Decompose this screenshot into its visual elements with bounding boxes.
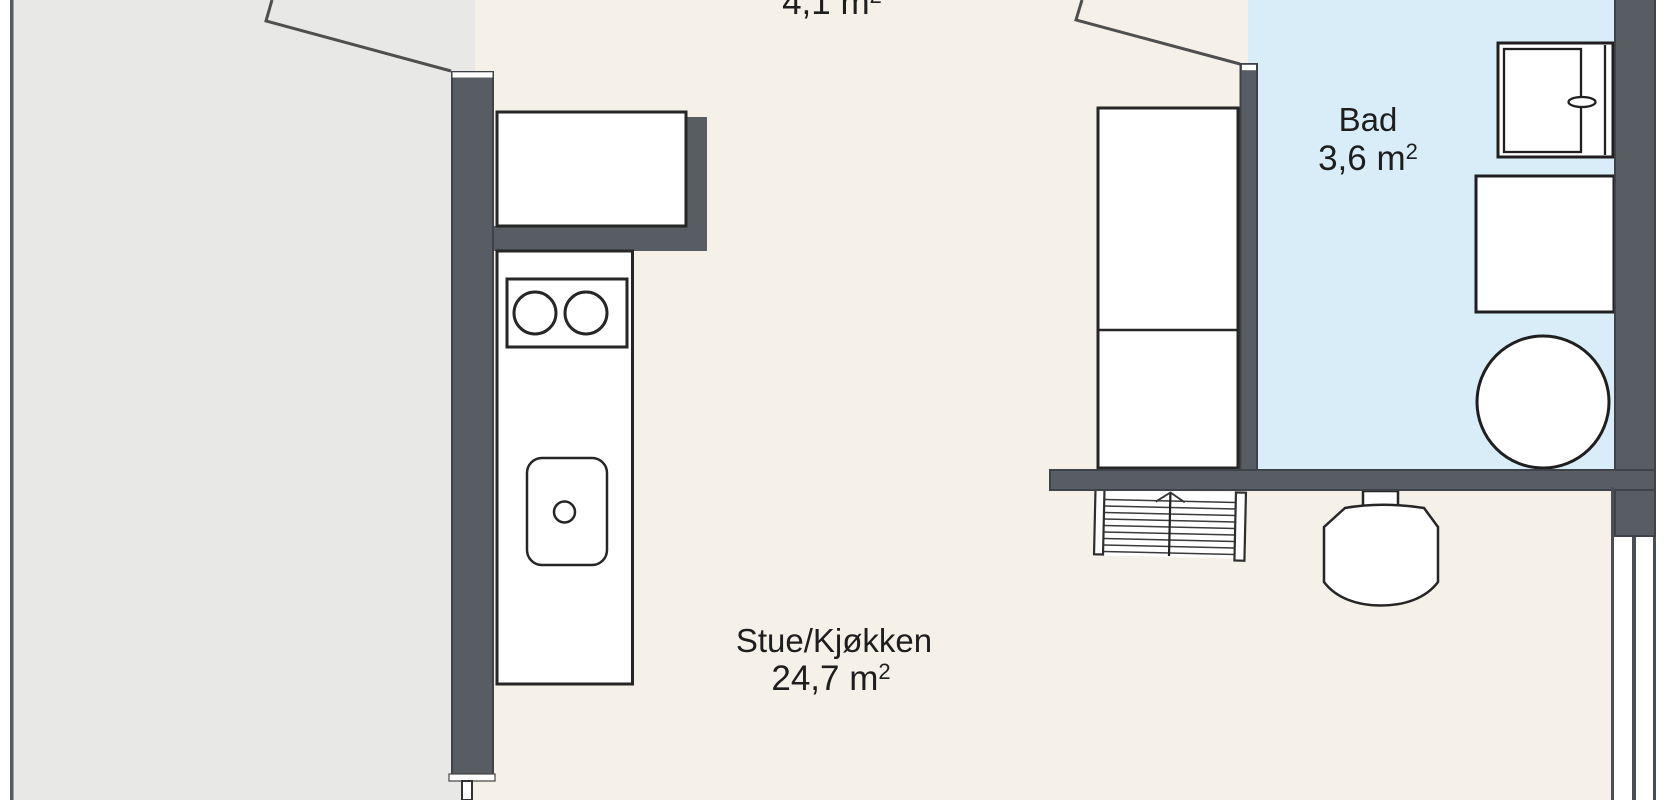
- svg-text:24,7 m2: 24,7 m2: [771, 659, 890, 698]
- svg-text:Bad: Bad: [1339, 101, 1398, 138]
- svg-text:3,6 m2: 3,6 m2: [1318, 139, 1418, 178]
- svg-text:4,1 m2: 4,1 m2: [782, 0, 882, 22]
- svg-text:Stue/Kjøkken: Stue/Kjøkken: [736, 622, 932, 659]
